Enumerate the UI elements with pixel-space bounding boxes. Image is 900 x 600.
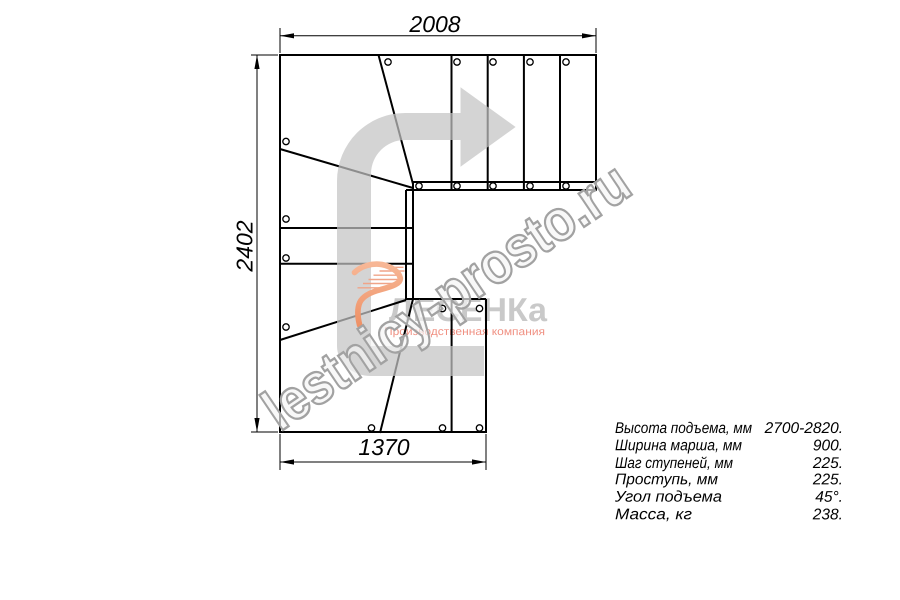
svg-text:2008: 2008 xyxy=(408,11,460,37)
svg-text:900.: 900. xyxy=(813,437,843,454)
svg-text:225.: 225. xyxy=(812,471,843,488)
svg-text:Шаг ступеней, мм: Шаг ступеней, мм xyxy=(615,455,733,472)
svg-text:45°.: 45°. xyxy=(815,489,843,506)
svg-text:2402: 2402 xyxy=(232,220,258,272)
svg-text:Угол подъема: Угол подъема xyxy=(614,489,722,506)
svg-text:Масса, кг: Масса, кг xyxy=(615,506,692,523)
svg-text:1370: 1370 xyxy=(358,434,409,460)
svg-text:Ширина марша, мм: Ширина марша, мм xyxy=(615,437,742,454)
svg-text:238.: 238. xyxy=(812,506,843,523)
svg-text:Проступь, мм: Проступь, мм xyxy=(615,471,718,488)
svg-text:Высота подъема, мм: Высота подъема, мм xyxy=(615,420,752,437)
svg-text:225.: 225. xyxy=(812,455,843,472)
svg-text:2700-2820.: 2700-2820. xyxy=(764,420,843,437)
